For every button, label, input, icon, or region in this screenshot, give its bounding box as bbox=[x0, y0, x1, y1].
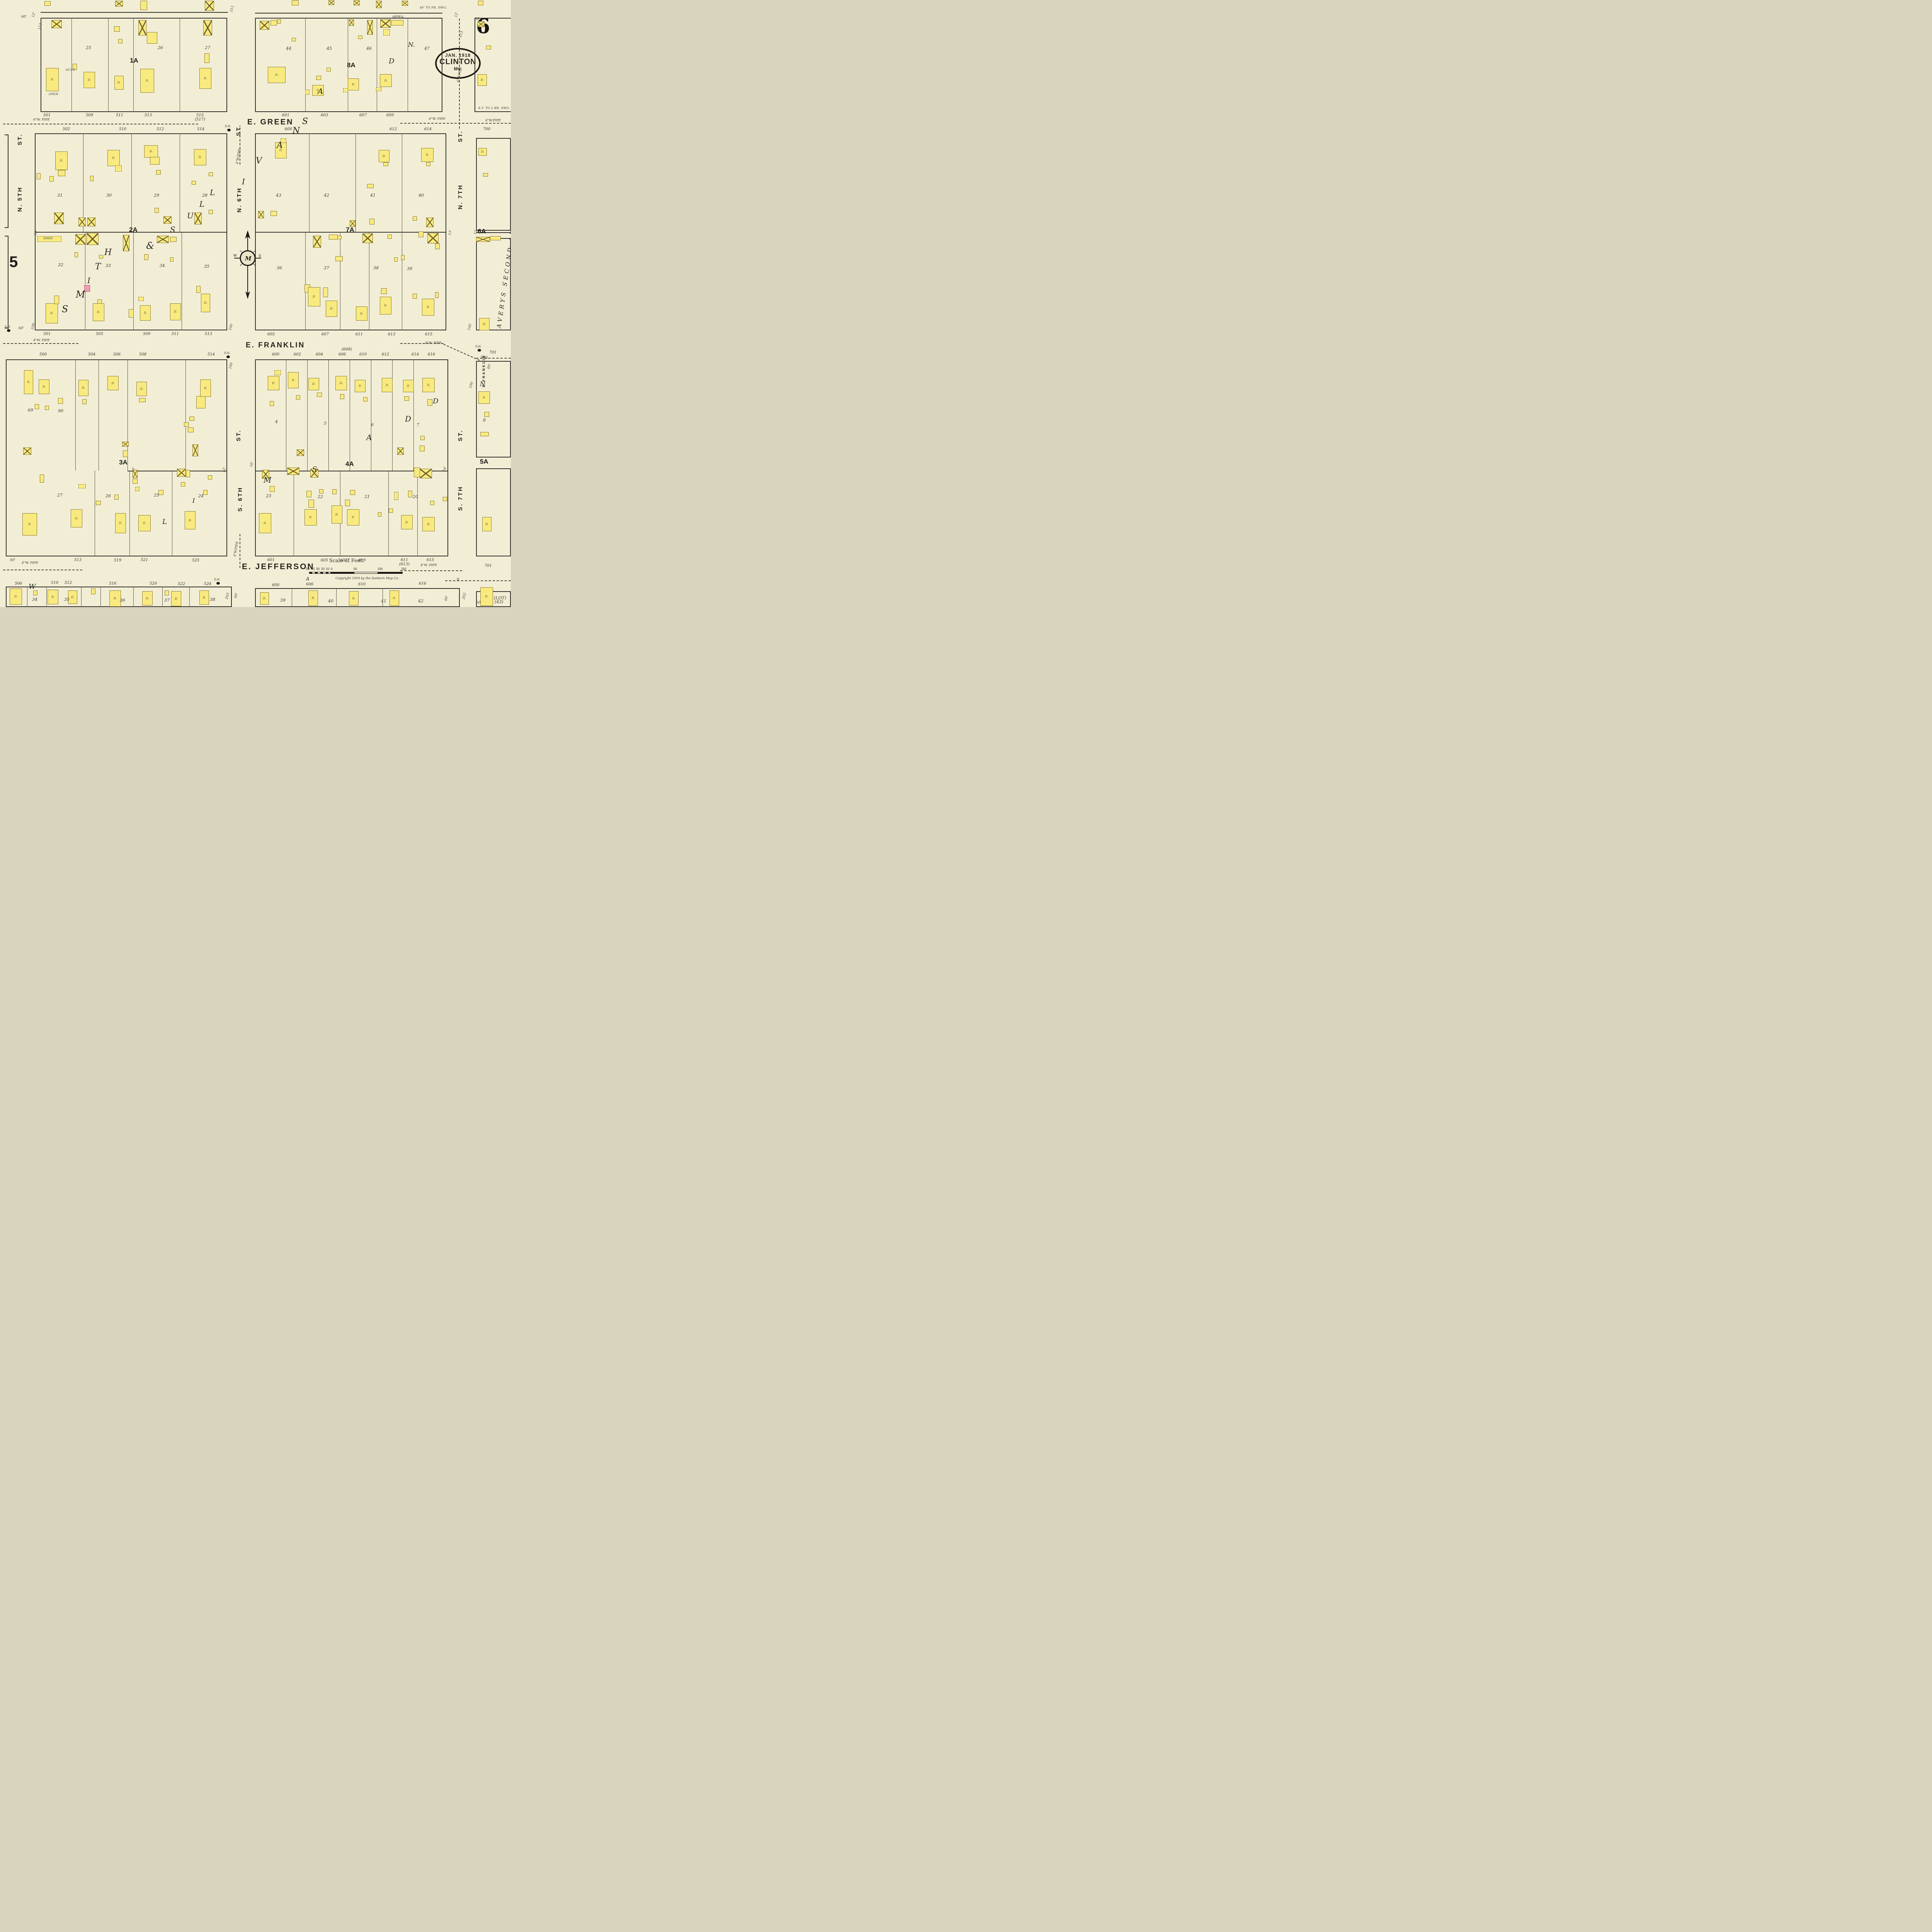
frame-building: D. bbox=[140, 305, 151, 321]
frame-building bbox=[367, 20, 373, 35]
dwelling-label: D. bbox=[204, 77, 207, 80]
lot-number: 40 bbox=[328, 599, 333, 603]
dwelling-label: D. bbox=[199, 156, 202, 159]
dwelling-label: D. bbox=[426, 153, 429, 156]
dimension-label: 60' bbox=[21, 15, 27, 19]
fire-hydrant-dot bbox=[478, 349, 481, 352]
pipe-size-label: 4"W.PIPE bbox=[485, 119, 501, 122]
addition-name-letter: S bbox=[62, 304, 68, 314]
house-number: 615 bbox=[427, 558, 434, 562]
frame-building bbox=[37, 173, 41, 179]
dwelling-label: D. bbox=[275, 73, 278, 77]
lot-boundary-line bbox=[182, 232, 182, 330]
house-number: 613 bbox=[388, 333, 395, 337]
map-title-city: CLINTON bbox=[437, 58, 479, 66]
frame-building bbox=[413, 216, 417, 221]
frame-building: D. bbox=[422, 378, 435, 392]
dwelling-label: D. bbox=[71, 596, 74, 599]
frame-building: D. bbox=[268, 376, 279, 390]
frame-building: D. bbox=[10, 588, 22, 605]
house-number: 516 bbox=[109, 582, 116, 586]
addition-name-letter: A bbox=[366, 434, 372, 441]
frame-building bbox=[376, 87, 381, 91]
frame-building bbox=[157, 236, 169, 243]
frame-building bbox=[122, 442, 129, 447]
frame-building bbox=[87, 233, 99, 245]
frame-building bbox=[58, 398, 63, 404]
map-margin-line bbox=[5, 227, 9, 228]
lot-number: 39 bbox=[280, 598, 286, 602]
lot-number: 5 bbox=[324, 421, 327, 425]
addition-name-letter: A bbox=[306, 577, 310, 581]
addition-name-letter: D bbox=[433, 398, 438, 405]
house-number: 524 bbox=[204, 582, 211, 586]
frame-building: D. bbox=[308, 287, 320, 306]
lot-number: 29 bbox=[154, 193, 159, 197]
dimension-label: 213 bbox=[459, 31, 464, 38]
lot-boundary-line bbox=[108, 18, 109, 112]
frame-building bbox=[270, 486, 275, 492]
dwelling-label: D. bbox=[97, 311, 100, 314]
map-annotation: 40' TO FR. DWG. bbox=[420, 6, 447, 9]
dwelling-label: D. bbox=[405, 521, 408, 524]
frame-building bbox=[308, 500, 314, 508]
frame-building: D. bbox=[55, 151, 68, 170]
frame-building: D. bbox=[347, 509, 359, 526]
house-number: 514 bbox=[197, 128, 204, 131]
frame-building: D. bbox=[78, 380, 88, 396]
lot-boundary-line bbox=[162, 587, 163, 607]
frame-building bbox=[51, 20, 62, 28]
frame-building bbox=[144, 254, 148, 260]
dwelling-label: D. bbox=[51, 595, 54, 599]
dwelling-label: D. bbox=[384, 304, 387, 307]
lot-boundary-line bbox=[402, 133, 402, 232]
dwelling-label: D. bbox=[82, 386, 85, 389]
house-number: 513 bbox=[145, 114, 152, 117]
dimension-label: 50 bbox=[476, 601, 480, 605]
lot-number: 37 bbox=[164, 598, 170, 602]
frame-building bbox=[480, 432, 489, 436]
fire-hydrant-label: D.H. bbox=[475, 345, 481, 348]
water-pipe-line bbox=[240, 534, 240, 568]
lot-number: 20 bbox=[413, 495, 418, 499]
frame-building bbox=[177, 469, 186, 477]
dwelling-label: D. bbox=[28, 523, 31, 526]
frame-building: D. bbox=[403, 380, 414, 392]
fire-hydrant-label: D.H. bbox=[5, 325, 11, 328]
city-block bbox=[41, 18, 227, 112]
block-number-label: 3A bbox=[119, 459, 128, 466]
frame-building bbox=[99, 255, 103, 259]
sanborn-map-sheet: JAN. 1918 CLINTON Mo. 6 M W E Scale of F… bbox=[0, 0, 511, 607]
frame-building: D. bbox=[170, 303, 181, 320]
block-number-label: 4A bbox=[345, 461, 354, 467]
frame-building: D. bbox=[199, 590, 209, 605]
dwelling-label: D. bbox=[359, 384, 362, 388]
dwelling-label: D. bbox=[272, 382, 275, 385]
addition-name-letter: D bbox=[389, 58, 394, 65]
frame-building bbox=[115, 165, 122, 172]
frame-building bbox=[362, 233, 373, 243]
lot-number: 22 bbox=[318, 495, 323, 499]
addition-name-letter: V bbox=[256, 157, 262, 165]
water-pipe-line bbox=[445, 580, 511, 581]
lot-number: 47 bbox=[424, 46, 430, 51]
frame-building bbox=[430, 501, 434, 505]
lot-boundary-line bbox=[369, 232, 369, 330]
frame-building bbox=[139, 398, 146, 402]
scale-tick-label: 30 bbox=[316, 567, 320, 571]
lot-number: 31 bbox=[57, 193, 63, 197]
house-number: 508 bbox=[139, 353, 146, 357]
frame-building: D. bbox=[46, 68, 59, 91]
addition-name-letter: A bbox=[318, 87, 323, 95]
frame-building bbox=[138, 20, 146, 36]
fire-hydrant-label: D.H. bbox=[224, 352, 230, 355]
frame-building bbox=[381, 288, 387, 294]
addition-name-letter: I bbox=[87, 277, 90, 284]
scale-bar-segment bbox=[309, 572, 331, 574]
house-number: 614 bbox=[412, 353, 419, 357]
frame-building bbox=[369, 219, 374, 224]
frame-building bbox=[270, 211, 277, 216]
lot-boundary-line bbox=[133, 18, 134, 112]
lot-number: 27 bbox=[57, 493, 63, 497]
frame-building bbox=[391, 20, 403, 26]
frame-building bbox=[196, 286, 201, 293]
block-number-label: 8A bbox=[347, 62, 355, 68]
frame-building bbox=[296, 395, 300, 400]
frame-building: D. bbox=[479, 318, 490, 330]
dwelling-label: D. bbox=[14, 595, 17, 598]
pipe-size-label: 4"W. PIPE bbox=[425, 342, 442, 345]
addition-name-letter: M bbox=[76, 290, 85, 299]
lot-boundary-line bbox=[100, 587, 101, 607]
lot-boundary-line bbox=[189, 587, 190, 607]
lot-boundary-line bbox=[340, 232, 340, 330]
dwelling-label: D. bbox=[352, 597, 355, 600]
addition-name-letter: L bbox=[210, 189, 215, 196]
lot-boundary-line bbox=[180, 133, 180, 232]
svg-text:M: M bbox=[245, 255, 252, 262]
frame-building bbox=[260, 21, 269, 30]
dwelling-label: D. bbox=[485, 595, 488, 598]
water-pipe-line bbox=[400, 570, 462, 571]
house-number: 522 bbox=[178, 582, 185, 586]
frame-building bbox=[420, 446, 425, 451]
frame-building bbox=[476, 237, 490, 242]
lot-number: 24 bbox=[198, 494, 204, 498]
lot-number: 4 bbox=[275, 420, 278, 424]
frame-building bbox=[354, 0, 360, 5]
water-pipe-line bbox=[3, 343, 78, 344]
frame-building bbox=[332, 489, 337, 494]
frame-building bbox=[426, 162, 430, 166]
map-annotation: SHED bbox=[43, 237, 53, 240]
house-number: 513 bbox=[205, 332, 212, 336]
house-number: 605 bbox=[321, 559, 328, 563]
frame-building bbox=[82, 399, 87, 404]
frame-building: D. bbox=[185, 511, 196, 529]
house-number: (517) bbox=[195, 118, 205, 122]
house-number: 509 bbox=[86, 114, 93, 117]
lot-boundary-line bbox=[336, 588, 337, 607]
dwelling-label: D. bbox=[483, 323, 486, 326]
house-number: 511 bbox=[116, 114, 123, 117]
map-margin-line bbox=[8, 236, 9, 329]
house-number: 512 bbox=[156, 128, 164, 131]
house-number: 514 bbox=[207, 353, 215, 357]
fire-hydrant-dot bbox=[226, 355, 230, 358]
frame-building: D. bbox=[71, 509, 82, 527]
frame-building bbox=[49, 176, 54, 182]
pipe-size-label: 4"W.PIPE bbox=[233, 541, 239, 557]
frame-building bbox=[189, 417, 194, 421]
frame-building bbox=[270, 401, 274, 406]
street-label: E. JEFFERSON bbox=[242, 563, 315, 571]
house-number: 615 bbox=[425, 333, 432, 337]
frame-building bbox=[358, 36, 362, 39]
lot-number: 69 bbox=[28, 408, 33, 412]
pipe-size-label: 4"W. PIPE bbox=[33, 339, 50, 342]
addition-name-letter: W bbox=[29, 583, 36, 590]
scale-tick-label: 10 bbox=[326, 567, 329, 571]
dwelling-label: D. bbox=[383, 155, 386, 158]
frame-building bbox=[274, 370, 281, 375]
dimension-label: 12' bbox=[454, 12, 459, 18]
frame-building bbox=[490, 236, 501, 240]
lot-number: 35 bbox=[204, 264, 209, 269]
dwelling-label: D. bbox=[264, 522, 267, 525]
lot-boundary-line bbox=[71, 18, 72, 112]
lot-boundary-line bbox=[371, 359, 371, 471]
frame-building bbox=[135, 487, 139, 491]
house-number: 8 bbox=[457, 578, 459, 582]
dwelling-label: D. bbox=[340, 382, 343, 385]
house-number: 600 bbox=[272, 353, 279, 357]
frame-building bbox=[23, 447, 31, 455]
house-number: 602 bbox=[294, 353, 301, 357]
dwelling-label: D. bbox=[313, 295, 316, 298]
lot-boundary-line bbox=[350, 359, 350, 471]
house-number: 504 bbox=[88, 353, 95, 357]
lot-boundary-line bbox=[286, 359, 286, 471]
lot-boundary-line bbox=[402, 232, 402, 330]
frame-building bbox=[349, 19, 354, 26]
frame-building bbox=[203, 490, 207, 495]
house-number: 616 bbox=[428, 353, 435, 357]
house-number: 511 bbox=[172, 332, 179, 336]
dwelling-label: D. bbox=[143, 522, 146, 525]
house-number: 607 bbox=[359, 114, 367, 117]
frame-building bbox=[118, 39, 122, 43]
dwelling-label: D. bbox=[386, 384, 389, 387]
frame-building bbox=[114, 26, 120, 32]
lot-boundary-line bbox=[83, 133, 83, 232]
frame-building bbox=[192, 181, 196, 185]
frame-building bbox=[33, 590, 37, 595]
house-number: (608) bbox=[342, 348, 352, 352]
frame-building: D. bbox=[422, 517, 435, 531]
frame-building bbox=[181, 482, 185, 486]
frame-building bbox=[397, 447, 404, 455]
map-margin-line bbox=[5, 236, 9, 236]
dwelling-label: D. bbox=[88, 78, 91, 82]
frame-building: D. bbox=[478, 148, 487, 156]
frame-building bbox=[420, 436, 425, 440]
fire-hydrant-label: D.H. bbox=[214, 578, 220, 581]
house-number: 510 bbox=[51, 581, 58, 585]
addition-name-letter: I bbox=[242, 178, 245, 185]
house-number: 600 bbox=[272, 583, 279, 587]
frame-building bbox=[408, 491, 412, 497]
dwelling-label: D. bbox=[140, 388, 143, 391]
frame-building bbox=[420, 469, 432, 478]
lot-boundary-line bbox=[85, 232, 85, 330]
lot-boundary-line bbox=[180, 18, 180, 112]
lot-boundary-line bbox=[309, 133, 310, 232]
dwelling-label: D. bbox=[43, 385, 46, 388]
lot-boundary-line bbox=[75, 359, 76, 471]
frame-building: D. bbox=[380, 297, 391, 315]
addition-name-letter: D bbox=[405, 415, 411, 423]
frame-building bbox=[292, 0, 299, 5]
frame-building bbox=[486, 46, 491, 49]
house-number: 604 bbox=[316, 353, 323, 357]
house-number: 521 bbox=[141, 558, 148, 562]
dwelling-label: D. bbox=[60, 159, 63, 162]
lot-number: 25 bbox=[154, 493, 159, 497]
addition-name-letter: M bbox=[264, 476, 271, 484]
frame-building: D. bbox=[109, 590, 121, 607]
frame-building: D. bbox=[138, 515, 151, 531]
lot-boundary-line bbox=[46, 587, 47, 607]
frame-building bbox=[317, 393, 322, 397]
dwelling-label: D. bbox=[114, 597, 117, 600]
frame-building: D. bbox=[335, 376, 347, 390]
addition-name-letter: N bbox=[480, 381, 485, 387]
dwelling-label: D. bbox=[27, 381, 30, 384]
house-number: 501 bbox=[43, 332, 51, 336]
scale-tick-label: 0 bbox=[331, 567, 332, 571]
frame-building: D. bbox=[46, 303, 58, 323]
frame-building bbox=[345, 500, 350, 506]
fire-hydrant-dot bbox=[227, 129, 231, 131]
frame-building: D. bbox=[200, 379, 211, 397]
street-label: ST. bbox=[17, 133, 23, 145]
addition-name-letter: N bbox=[293, 127, 300, 135]
addition-name-letter: S bbox=[312, 466, 317, 473]
addition-name-letter: S bbox=[170, 226, 175, 233]
dwelling-label: D. bbox=[146, 79, 149, 82]
frame-building: D. bbox=[326, 301, 337, 317]
frame-building bbox=[150, 157, 160, 165]
street-label: E. FRANKLIN bbox=[246, 342, 305, 349]
lot-number: 41 bbox=[381, 599, 386, 603]
frame-building: D. bbox=[379, 150, 389, 162]
lot-boundary-line bbox=[305, 18, 306, 112]
block-division-line bbox=[41, 12, 228, 13]
frame-building: D. bbox=[201, 294, 210, 312]
house-number: 525 bbox=[192, 559, 199, 563]
house-number: 502 bbox=[63, 128, 70, 131]
street-label: ST. bbox=[236, 429, 241, 441]
dimension-label: 12' bbox=[32, 12, 36, 18]
lot-number: 38 bbox=[210, 597, 215, 602]
water-pipe-line bbox=[3, 570, 82, 570]
dwelling-label: D. bbox=[175, 597, 178, 600]
lot-boundary-line bbox=[81, 587, 82, 607]
block-number-label: 5A bbox=[480, 458, 488, 465]
house-number: 611 bbox=[355, 333, 363, 337]
lot-number: 36 bbox=[277, 266, 282, 270]
frame-building bbox=[96, 501, 101, 505]
house-number: 601 bbox=[267, 558, 275, 562]
house-number: 520 bbox=[150, 582, 157, 586]
frame-building bbox=[188, 427, 194, 432]
frame-building bbox=[133, 479, 138, 484]
copyright-line: Copyright 1918 by the Sanborn Map Co. bbox=[335, 577, 399, 580]
house-number: 609 bbox=[358, 559, 366, 563]
frame-building bbox=[44, 1, 51, 6]
frame-building bbox=[378, 512, 381, 517]
house-number: 607 bbox=[321, 333, 329, 337]
frame-building bbox=[123, 235, 129, 251]
fire-hydrant-dot bbox=[7, 329, 10, 332]
frame-building: D. bbox=[140, 69, 154, 93]
house-number: 512 bbox=[65, 581, 72, 585]
frame-building bbox=[427, 399, 432, 406]
street-label: ST. bbox=[457, 130, 463, 142]
lot-number: 40 bbox=[418, 193, 424, 197]
lot-number: 30 bbox=[106, 193, 112, 197]
street-label: N. 7TH bbox=[457, 184, 463, 209]
dwelling-label: D. bbox=[330, 307, 333, 310]
lot-number: 42 bbox=[418, 599, 423, 603]
frame-building bbox=[163, 216, 172, 224]
house-number: 519 bbox=[114, 559, 121, 563]
block-number-label: 7A bbox=[346, 226, 354, 233]
dwelling-label: D. bbox=[427, 523, 430, 526]
frame-building: D. bbox=[349, 591, 359, 605]
lot-boundary-line bbox=[392, 359, 393, 471]
addition-name-letter: L bbox=[199, 200, 204, 208]
frame-building: D. bbox=[260, 592, 269, 605]
frame-building bbox=[328, 0, 334, 5]
fire-hydrant-dot bbox=[216, 582, 220, 585]
dimension-label: 13' bbox=[448, 230, 453, 236]
pipe-size-label: 4"W. PIPE bbox=[22, 561, 38, 565]
frame-building bbox=[292, 38, 296, 41]
house-number: 509 bbox=[143, 332, 150, 336]
dimension-label: 211 bbox=[230, 5, 235, 12]
house-number: 611 bbox=[401, 558, 408, 562]
addition-name-letter: U bbox=[187, 212, 194, 219]
dwelling-label: D. bbox=[189, 519, 192, 522]
frame-building bbox=[394, 492, 398, 500]
house-number: (613) bbox=[399, 563, 410, 566]
frame-building: D. bbox=[304, 509, 317, 526]
street-label: N. 5TH bbox=[17, 186, 23, 212]
house-number: 609 bbox=[386, 114, 394, 117]
house-number: 612 bbox=[389, 128, 397, 131]
addition-name-letter: I bbox=[192, 498, 195, 504]
frame-building bbox=[418, 231, 423, 237]
lot-boundary-line bbox=[328, 359, 329, 471]
house-number: 609¼ bbox=[393, 15, 404, 19]
house-number: 700 bbox=[480, 356, 488, 360]
